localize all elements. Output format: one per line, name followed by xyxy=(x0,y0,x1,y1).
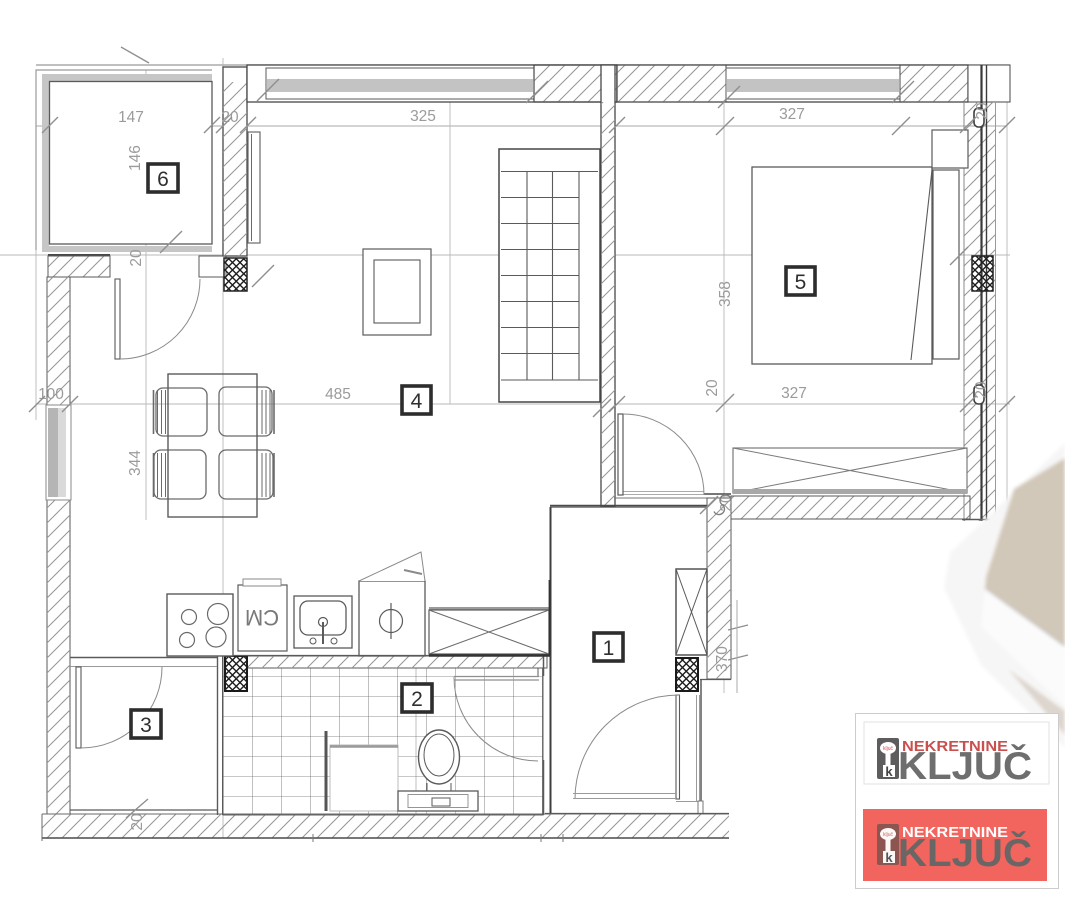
svg-text:ključ: ključ xyxy=(883,832,894,838)
svg-text:358: 358 xyxy=(717,281,734,307)
svg-text:5: 5 xyxy=(795,271,807,294)
svg-text:485: 485 xyxy=(325,386,351,403)
svg-text:3: 3 xyxy=(140,714,152,737)
svg-text:KLJUČ: KLJUČ xyxy=(898,743,1032,788)
svg-text:CM: CM xyxy=(245,605,279,630)
svg-text:325: 325 xyxy=(410,108,436,125)
svg-text:370: 370 xyxy=(714,646,731,672)
svg-text:6: 6 xyxy=(157,168,169,191)
svg-text:1: 1 xyxy=(603,637,615,660)
svg-text:ključ: ključ xyxy=(883,746,894,752)
svg-text:20: 20 xyxy=(974,102,991,120)
svg-text:k: k xyxy=(885,850,893,865)
svg-text:20: 20 xyxy=(704,379,721,397)
svg-text:20: 20 xyxy=(128,249,145,267)
svg-text:20: 20 xyxy=(221,109,239,126)
svg-text:327: 327 xyxy=(781,385,807,402)
svg-text:KLJUČ: KLJUČ xyxy=(898,830,1032,875)
svg-text:4: 4 xyxy=(411,390,423,413)
svg-text:k: k xyxy=(885,764,893,779)
svg-text:2: 2 xyxy=(411,688,423,711)
svg-text:146: 146 xyxy=(127,145,144,171)
svg-text:344: 344 xyxy=(127,450,144,476)
svg-text:327: 327 xyxy=(779,106,805,123)
svg-text:100: 100 xyxy=(38,386,64,403)
svg-text:20: 20 xyxy=(129,813,146,831)
svg-text:147: 147 xyxy=(118,109,144,126)
